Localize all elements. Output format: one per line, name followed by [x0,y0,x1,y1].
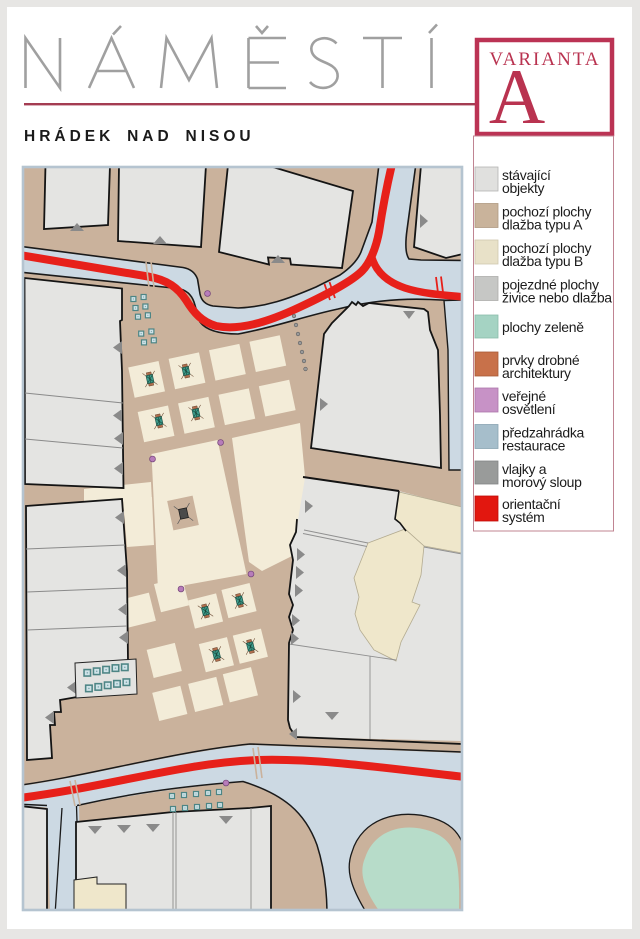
svg-text:restaurace: restaurace [502,438,566,454]
svg-text:plochy zeleně: plochy zeleně [502,319,584,335]
svg-text:A: A [489,53,545,140]
svg-text:architektury: architektury [502,365,571,381]
svg-text:objekty: objekty [502,180,545,196]
svg-text:HRÁDEK NAD NISOU: HRÁDEK NAD NISOU [24,128,255,145]
svg-text:dlažba typu A: dlažba typu A [502,217,583,233]
svg-text:osvětlení: osvětlení [502,401,556,417]
svg-text:živice nebo dlažba: živice nebo dlažba [502,290,612,306]
svg-text:dlažba typu B: dlažba typu B [502,253,583,269]
svg-text:morový sloup: morový sloup [502,474,582,490]
svg-text:systém: systém [502,509,545,525]
